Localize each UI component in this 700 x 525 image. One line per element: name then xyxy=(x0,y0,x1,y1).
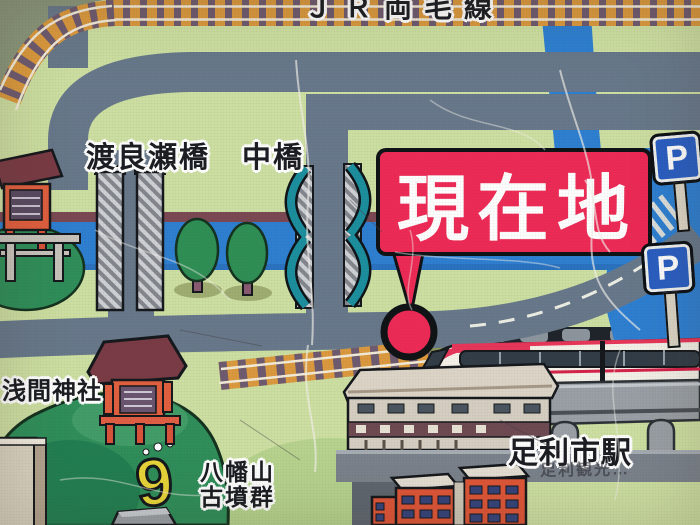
you-are-here-bubble: 現在地 xyxy=(376,148,652,256)
corner-building-illustration xyxy=(0,438,46,525)
parking-sign-2: P xyxy=(639,240,700,350)
you-are-here-text: 現在地 xyxy=(397,150,637,255)
road-second-north xyxy=(306,94,700,130)
hachimanyama-kofun-label-line2: 古墳群 xyxy=(200,485,275,510)
sengen-shrine-label: 浅間神社 xyxy=(2,371,102,406)
parking-sign-1: P xyxy=(648,130,700,234)
railway-line-label: ＪＲ両毛線 xyxy=(304,0,504,26)
sign-pole xyxy=(673,181,690,232)
worn-caption-label: 足利観光… xyxy=(540,455,630,481)
hachimanyama-kofun-label: 八幡山 古墳群 xyxy=(200,460,275,510)
parking-icon: P xyxy=(640,240,696,296)
magatama-icon: 9 xyxy=(132,442,176,521)
watarase-bridge-label: 渡良瀬橋 xyxy=(86,134,210,176)
hachimanyama-kofun-label-line1: 八幡山 xyxy=(200,460,275,485)
parking-icon: P xyxy=(649,130,700,186)
tree-icon xyxy=(174,219,222,298)
naka-bridge-label: 中橋 xyxy=(242,134,304,176)
sign-pole xyxy=(663,292,680,349)
map-sign-photo: ＪＲ両毛線 渡良瀬橋 中橋 浅間神社 八幡山 古墳群 足利市駅 足利観光… 9 … xyxy=(0,0,700,525)
watarase-bridge-illustration xyxy=(95,150,165,325)
